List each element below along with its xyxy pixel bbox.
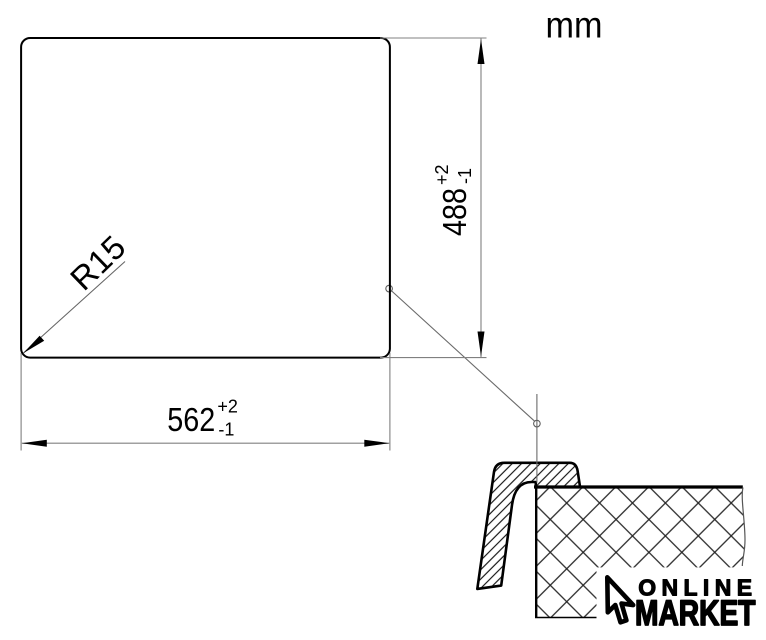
svg-text:+2: +2 [432, 164, 452, 185]
svg-text:-1: -1 [455, 168, 475, 184]
svg-text:562: 562 [167, 401, 215, 438]
svg-text:-1: -1 [218, 420, 234, 440]
svg-text:+2: +2 [217, 397, 238, 417]
svg-text:488: 488 [436, 188, 473, 236]
svg-text:MARKET: MARKET [635, 593, 756, 633]
svg-text:mm: mm [546, 5, 603, 46]
